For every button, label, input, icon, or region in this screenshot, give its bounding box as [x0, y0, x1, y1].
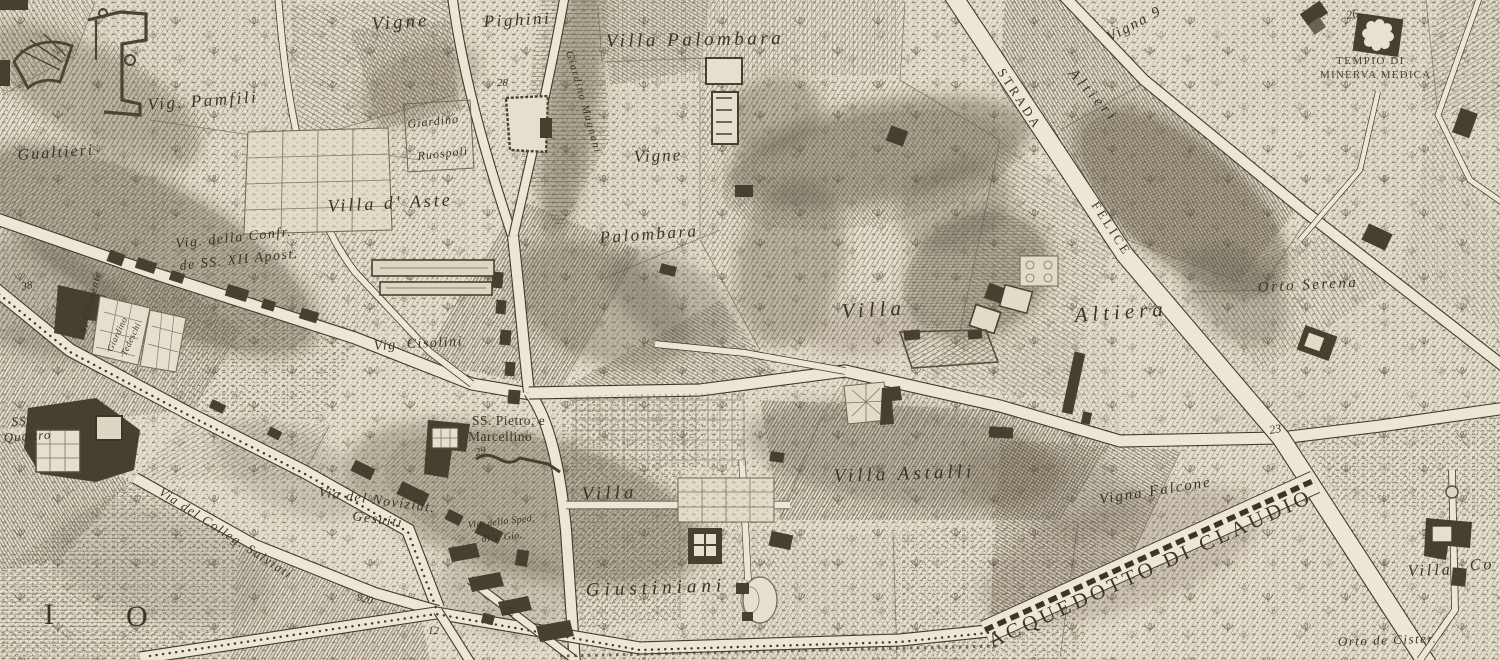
svg-text:Marcellino: Marcellino — [468, 429, 532, 444]
svg-text:Villa: Villa — [1408, 561, 1453, 580]
svg-text:Villa: Villa — [581, 482, 637, 505]
svg-text:Villa: Villa — [841, 296, 906, 323]
svg-text:Vigne: Vigne — [371, 10, 430, 35]
svg-text:I: I — [44, 598, 54, 631]
svg-text:O: O — [126, 600, 148, 633]
svg-text:Co: Co — [1470, 556, 1495, 574]
svg-text:23: 23 — [1268, 421, 1282, 437]
svg-text:Vigne: Vigne — [633, 145, 682, 166]
svg-text:12: 12 — [428, 625, 440, 637]
svg-text:Pighini: Pighini — [482, 8, 551, 31]
svg-text:TEMPIO DI: TEMPIO DI — [1336, 55, 1405, 67]
svg-text:Villa Palombara: Villa Palombara — [606, 28, 785, 52]
svg-text:26: 26 — [1345, 6, 1359, 22]
svg-text:MINERVA MEDICA: MINERVA MEDICA — [1320, 69, 1431, 81]
svg-text:28: 28 — [497, 77, 509, 89]
svg-text:SS.: SS. — [11, 413, 31, 429]
svg-text:SS. Pietro, e: SS. Pietro, e — [472, 413, 545, 428]
